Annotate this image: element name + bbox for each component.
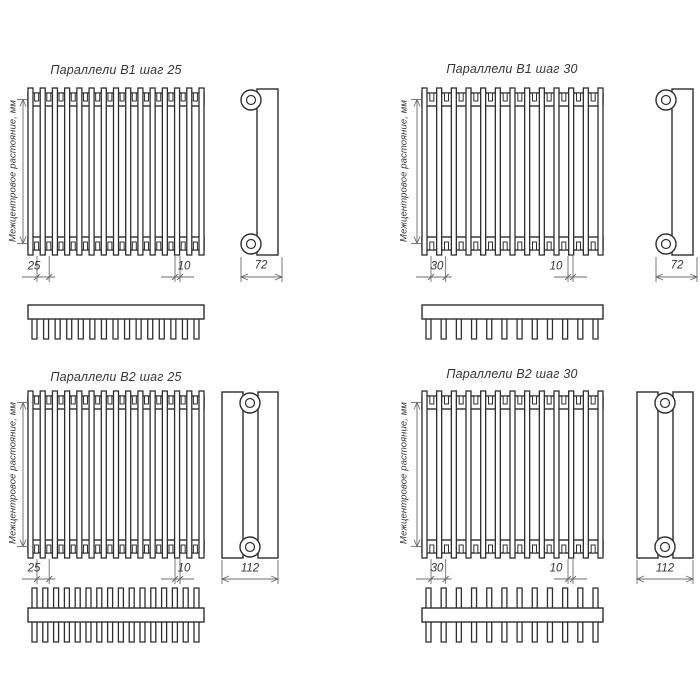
top-view	[422, 305, 603, 339]
bottom-dimensions	[22, 256, 194, 282]
technical-linework	[0, 0, 700, 700]
tube-dim-b1-25: 10	[178, 261, 191, 273]
side-view	[241, 89, 282, 282]
center-distance-dimension	[411, 403, 421, 547]
quadrant-b1-30-linework	[411, 88, 697, 339]
quadrant-title-b2-30: Параллели В2 шаг 30	[446, 368, 577, 381]
pitch-dim-b1-30: 30	[431, 261, 444, 273]
pitch-dim-b2-30: 30	[431, 563, 444, 575]
side-view	[637, 392, 693, 584]
front-view	[28, 88, 204, 255]
center-distance-label-b1-30: Межцентровое растояние, мм	[399, 100, 409, 242]
center-distance-dimension	[17, 100, 27, 244]
quadrant-title-b1-25: Параллели В1 шаг 25	[50, 64, 181, 77]
top-view	[28, 305, 204, 339]
tube-dim-b2-25: 10	[178, 563, 191, 575]
center-distance-dimension	[17, 403, 27, 547]
front-view	[422, 391, 603, 558]
top-view	[422, 588, 603, 642]
side-view	[656, 89, 697, 282]
depth-dim-b1-30: 72	[671, 260, 684, 272]
bottom-dimensions	[22, 559, 194, 584]
depth-dim-b2-30: 112	[656, 563, 674, 575]
center-distance-dimension	[411, 100, 421, 244]
quadrant-b1-25-linework	[17, 88, 282, 339]
quadrant-title-b1-30: Параллели В1 шаг 30	[446, 63, 577, 76]
quadrant-b2-25-linework	[17, 391, 278, 642]
quadrant-b2-30-linework	[411, 391, 693, 642]
front-view	[422, 88, 603, 255]
quadrant-title-b2-25: Параллели В2 шаг 25	[50, 371, 181, 384]
pitch-dim-b2-25: 25	[28, 563, 41, 575]
tube-dim-b2-30: 10	[550, 563, 563, 575]
front-view	[28, 391, 204, 558]
depth-dim-b1-25: 72	[255, 260, 268, 272]
depth-dim-b2-25: 112	[241, 563, 259, 575]
side-view	[222, 392, 278, 584]
center-distance-label-b2-30: Межцентровое растояние, мм	[399, 402, 409, 544]
center-distance-label-b2-25: Межцентровое растояние, мм	[8, 402, 18, 544]
tube-dim-b1-30: 10	[550, 261, 563, 273]
pitch-dim-b1-25: 25	[28, 261, 41, 273]
top-view	[28, 588, 204, 642]
center-distance-label-b1-25: Межцентровое растояние, мм	[8, 100, 18, 242]
radiator-drawing-sheet: Параллели В1 шаг 25 Параллели В1 шаг 30 …	[0, 0, 700, 700]
